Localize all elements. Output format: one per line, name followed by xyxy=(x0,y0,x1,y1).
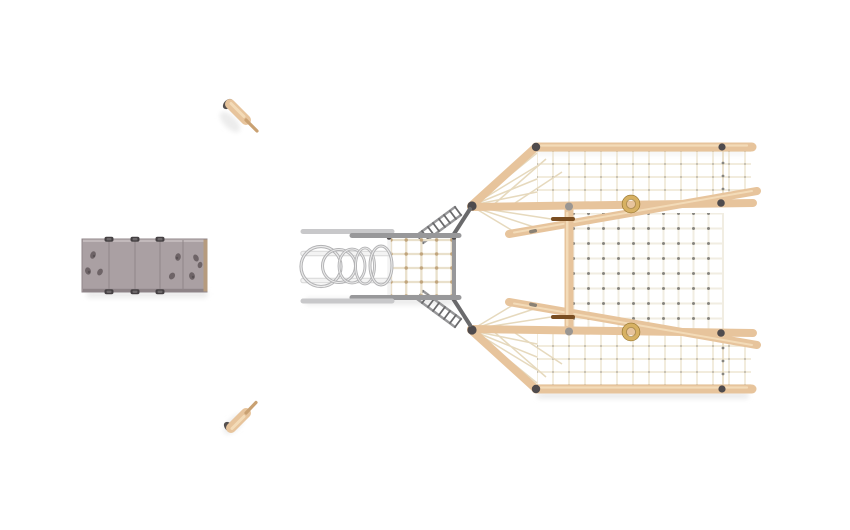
climbing-structure[interactable] xyxy=(301,143,757,393)
stepping-post-bottom[interactable] xyxy=(222,403,256,435)
wall-bottom-edge xyxy=(83,289,206,292)
post-tip xyxy=(246,120,257,131)
wall-side-trim xyxy=(204,240,208,292)
net-deck xyxy=(387,235,457,301)
climbing-wall[interactable] xyxy=(82,237,208,294)
lower-horizontal-beam xyxy=(471,329,753,333)
wall-top-edge xyxy=(83,240,206,243)
corner-strut xyxy=(452,297,470,325)
corner-strut xyxy=(452,209,470,237)
upper-horizontal-beam xyxy=(471,203,753,207)
playground-top-view xyxy=(0,0,850,530)
deck-mesh xyxy=(390,238,454,298)
post-tip xyxy=(246,403,256,414)
wall-body xyxy=(82,239,207,292)
